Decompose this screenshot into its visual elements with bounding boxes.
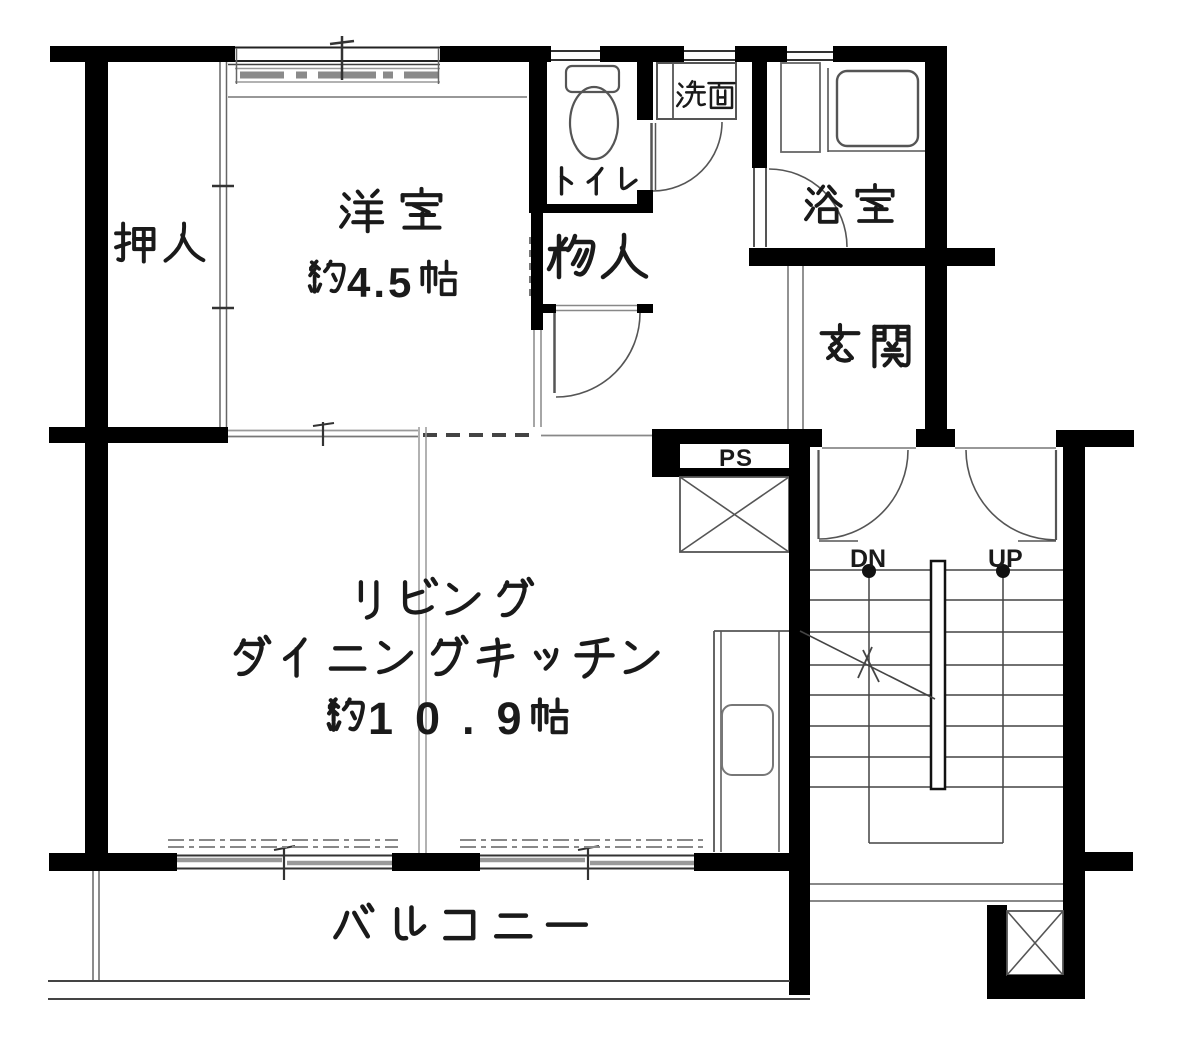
svg-text:4.5: 4.5 bbox=[347, 259, 414, 306]
svg-text:10.9: 10.9 bbox=[368, 693, 544, 744]
svg-text:DN: DN bbox=[850, 545, 886, 573]
svg-text:UP: UP bbox=[988, 545, 1023, 573]
svg-text:PS: PS bbox=[719, 445, 753, 472]
